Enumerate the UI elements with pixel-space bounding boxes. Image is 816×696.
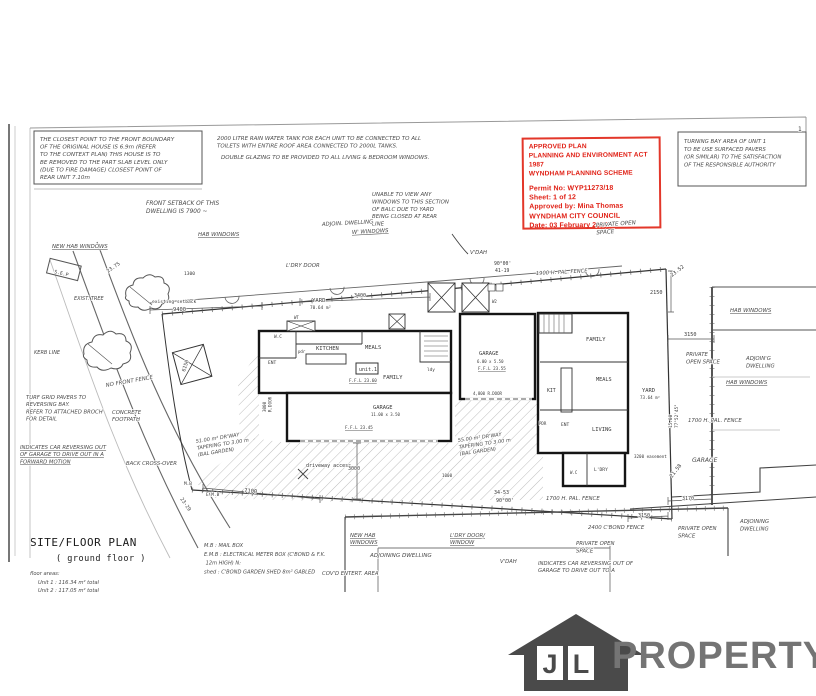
plan-label: ADJOIN'GDWELLING: [745, 356, 775, 369]
note-glazing: DOUBLE GLAZING TO BE PROVIDED TO ALL LIV…: [221, 155, 430, 161]
plan-label: GARAGE: [373, 405, 392, 411]
plan-label: 1000: [442, 473, 453, 478]
plan-label: MEALS: [365, 345, 381, 351]
plan-label: E.M.B: [206, 492, 220, 498]
plan-label: GARAGE: [479, 351, 498, 357]
plan-label: existing setback: [152, 299, 196, 305]
plan-label: KERB LINE: [34, 350, 61, 356]
plan-label: ldy: [427, 367, 435, 373]
note-rainwater: 2000 LITRE RAIN WATER TANK FOR EACH UNIT…: [217, 136, 421, 149]
plan-label: FAMILY: [586, 337, 606, 343]
plan-label: ADJOIN. DWELLING: [321, 219, 374, 228]
plan-label: 3000: [348, 466, 360, 472]
plan-label: 23.75: [106, 261, 122, 275]
plan-label: PRIVATE OPENSPACE: [678, 526, 717, 539]
plan-label: L'DRY DOOR/WINDOW: [450, 533, 486, 546]
note-balcony: UNABLE TO VIEW ANYWINDOWS TO THIS SECTIO…: [372, 192, 449, 228]
plan-title: SITE/FLOOR PLAN: [30, 536, 137, 549]
plan-label: 73.64 m²: [640, 395, 660, 400]
plan-label: 34-53: [494, 490, 509, 496]
note-reversing-2: INDICATES CAR REVERSING OUT OFGARAGE TO …: [538, 561, 634, 574]
plan-label: WT: [294, 315, 299, 320]
plan-label: W2: [492, 299, 497, 304]
plan-label: NEW HABWINDOWS: [350, 533, 378, 546]
plan-label: YARD: [312, 298, 326, 304]
plan-label: NEW HAB WINDOWS: [52, 244, 108, 250]
plan-label: 3150: [638, 513, 650, 519]
plan-label: PRIVATEOPEN SPACE: [686, 352, 721, 365]
plan-label: 3170: [682, 496, 694, 502]
plan-label: CONCRETEFOOTPATH: [112, 410, 142, 423]
plan-label: W.C: [570, 470, 578, 475]
sheet-number: 1: [798, 126, 802, 133]
logo-letter-l: L: [573, 649, 590, 679]
plan-label: 6.00 x 5.50: [477, 359, 504, 364]
plan-label: NO FRONT FENCE: [105, 375, 154, 389]
plan-label: COV'D ENTERT. AREA: [322, 571, 379, 577]
plan-label: V'DAH: [500, 559, 517, 565]
note-front-setback: FRONT SETBACK OF THISDWELLING IS 7900 ~: [146, 201, 220, 215]
plan-label: LIVING: [592, 427, 611, 433]
water-tanks: [428, 283, 503, 312]
plan-label: 3400: [354, 293, 366, 299]
plan-label: V'DAH: [470, 250, 487, 256]
plan-label: YARD: [642, 388, 655, 394]
plan-label: 11.00 x 3.50: [371, 412, 400, 417]
plan-label: HAB WINDOWS: [198, 232, 240, 238]
plan-label: ADJOINING DWELLING: [369, 553, 432, 559]
note-turf-pavers: TURF GRID PAVERS TOREVERSING BAY.REFER T…: [26, 395, 103, 423]
plan-label: 90°00': [496, 498, 514, 504]
plan-label: GARAGE: [692, 457, 718, 464]
plan-label: HAB WINDOWS: [726, 380, 768, 386]
floor-areas-heading: floor areas:: [30, 571, 60, 577]
logo-wordmark: PROPERTY: [612, 635, 816, 678]
plan-label: 4,800 R.DOOR: [473, 391, 502, 396]
plan-label: 23-29: [178, 497, 192, 513]
plan-label: pdr: [298, 349, 306, 354]
plan-label: W' WINDOWS: [352, 228, 389, 236]
scanned-plan-page: APPROVED PLAN PLANNING AND ENVIRONMENT A…: [0, 0, 816, 696]
plan-label: 2150: [650, 290, 663, 296]
plan-label: PDR: [539, 421, 547, 426]
plan-label: 23.52: [670, 264, 686, 278]
plan-label: 41-19: [495, 268, 510, 274]
plan-label: L'DRY: [594, 467, 608, 473]
plan-label: F.F.L 23.55: [478, 366, 506, 371]
unit1-label: unit.1: [359, 367, 377, 373]
plan-label: L'DRY DOOR: [286, 263, 320, 269]
shed-box: [172, 344, 211, 384]
note-reversing: INDICATES CAR REVERSING OUTOF GARAGE TO …: [20, 445, 107, 465]
plan-label: KITCHEN: [316, 346, 339, 352]
plan-label: 1700 H. PAL. FENCE: [546, 496, 600, 502]
adjoining-dwelling-bottom: [345, 508, 728, 592]
note-boundary: THE CLOSEST POINT TO THE FRONT BOUNDARYO…: [40, 137, 175, 181]
plan-label: M.B: [184, 481, 192, 487]
legend: M.B : MAIL BOXE.M.B : ELECTRICAL METER B…: [204, 543, 326, 575]
logo-letter-j: J: [542, 649, 557, 679]
plan-label: W.C: [274, 334, 282, 340]
plan-label: 1300: [184, 271, 195, 277]
site-plan-drawing: THE CLOSEST POINT TO THE FRONT BOUNDARYO…: [0, 0, 816, 696]
plan-label: 3000R.DOOR: [262, 396, 273, 412]
plan-label: 3200 easement: [634, 454, 667, 459]
note-turning-bay: TURNING BAY AREA OF UNIT 1TO BE USE SURF…: [684, 139, 781, 168]
plan-label: F.F.L 23.60: [349, 378, 377, 383]
plan-label: ADJOININGDWELLING: [739, 519, 769, 532]
plan-label: BACK CROSS-OVER: [126, 461, 177, 467]
floor-areas: Unit 1 : 116.34 m² totalUnit 2 : 117.05 …: [38, 580, 100, 594]
plan-label: 9400: [173, 307, 186, 313]
plan-label: 90°00': [494, 261, 511, 267]
plan-label: HAB WINDOWS: [730, 308, 772, 314]
plan-label: 1700 H. PAL. FENCE: [688, 418, 742, 424]
plan-label: EXIST. TREE: [74, 296, 105, 302]
plan-label: 2400 C'BOND FENCE: [588, 525, 645, 531]
plan-label: 70.64 m²: [310, 305, 331, 311]
plan-label: ENT: [561, 422, 570, 428]
jl-property-logo: J L PROPERTY: [506, 611, 816, 695]
plan-label: 3150: [684, 332, 697, 338]
plan-label: FAMILY: [383, 375, 403, 381]
plan-subtitle: ( ground floor ): [56, 554, 146, 564]
tree: [83, 275, 169, 371]
plan-label: driveway access: [306, 463, 351, 469]
plan-label: KIT: [547, 388, 556, 394]
plan-label: F.F.L 23.45: [345, 425, 373, 430]
plan-label: MEALS: [596, 377, 612, 383]
stamp-handwriting: PRIVATE OPENSPACE: [596, 220, 638, 236]
plan-label: ENT: [268, 360, 277, 366]
